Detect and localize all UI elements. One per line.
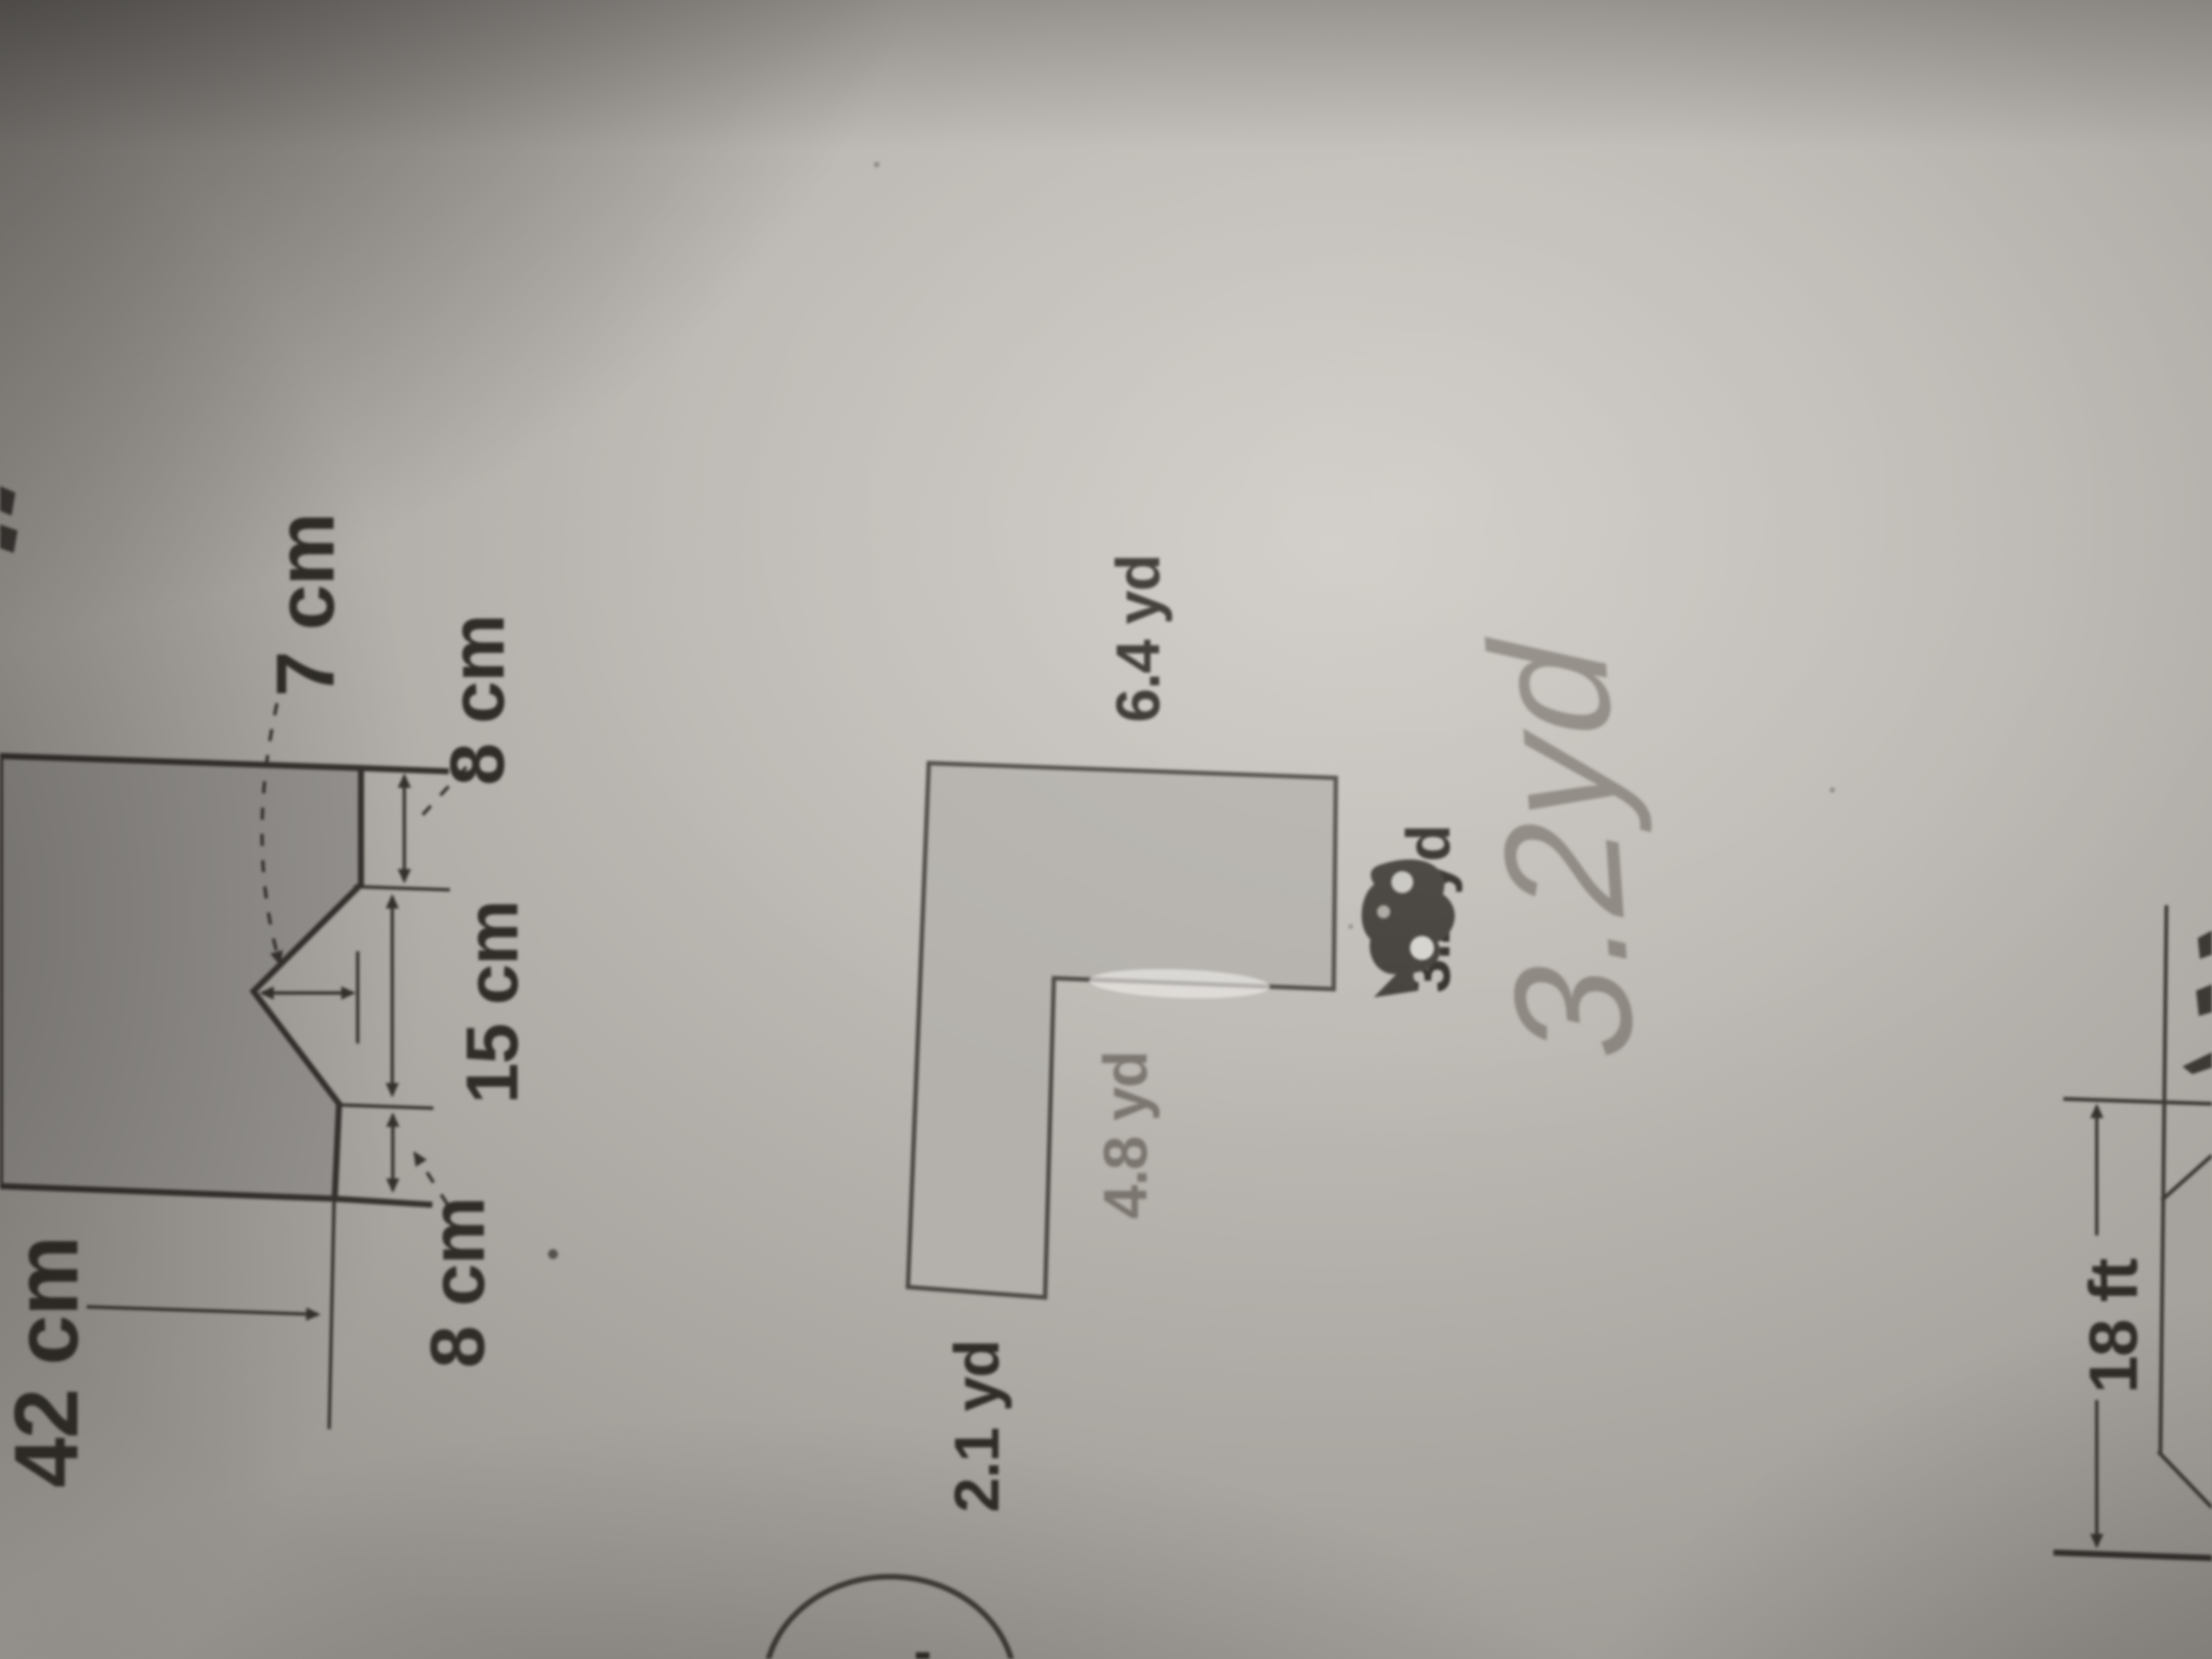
label-7cm: 7 cm bbox=[259, 513, 351, 697]
edge-fragment-right-1 bbox=[2198, 930, 2212, 959]
label-18ft: 18 ft bbox=[2076, 1259, 2152, 1393]
label-3-2yd-handwritten: 3.2yd bbox=[1455, 634, 1670, 1061]
figure-l-shape: 6.4 yd 4.8 yd 2.1 yd 3.2 yd 3.2yd 6. bbox=[765, 555, 1670, 1659]
dust-speck-4 bbox=[1348, 924, 1353, 929]
extension-line-notch-lower bbox=[339, 1105, 433, 1108]
worksheet-figures-layer: 42 cm 7 cm 8 cm 15 cm 8 cm 6.4 yd 4.8 yd… bbox=[0, 0, 2212, 1659]
figure-partial-bottom-right: 18 ft bbox=[2053, 905, 2212, 1558]
scribble-glare-3 bbox=[1377, 905, 1390, 918]
label-2-1yd: 2.1 yd bbox=[942, 1340, 1012, 1513]
notched-rectangle-shape bbox=[0, 756, 361, 1199]
label-15cm: 15 cm bbox=[452, 901, 533, 1104]
dust-speck-2 bbox=[874, 162, 879, 167]
scribble-glare-2 bbox=[1410, 936, 1434, 960]
partial-baseline bbox=[2053, 1553, 2212, 1558]
edge-fragment-right-2 bbox=[2196, 984, 2212, 1016]
dimension-42cm-arrow bbox=[87, 1307, 318, 1314]
leader-8cm-bottom bbox=[415, 1153, 448, 1205]
label-8cm-top: 8 cm bbox=[434, 615, 520, 786]
edge-fragment-right-3 bbox=[2182, 1052, 2212, 1074]
problem-number-circle bbox=[765, 1577, 1015, 1659]
label-6-4yd: 6.4 yd bbox=[1104, 555, 1172, 723]
partial-cross-line bbox=[2063, 1099, 2212, 1104]
partial-shape bbox=[2157, 1154, 2212, 1509]
problem-number-text: 6. bbox=[848, 1647, 949, 1659]
label-42cm: 42 cm bbox=[0, 1237, 97, 1488]
dust-speck-1 bbox=[548, 1249, 558, 1259]
figure-notched-rectangle: 42 cm 7 cm 8 cm 15 cm 8 cm bbox=[0, 513, 533, 1488]
extension-line-notch-upper bbox=[354, 887, 450, 890]
dust-speck-3 bbox=[1830, 787, 1835, 793]
label-4-8yd: 4.8 yd bbox=[1091, 1051, 1160, 1219]
edge-fragment-left-2 bbox=[0, 524, 18, 553]
edge-fragment-left-1 bbox=[0, 486, 15, 516]
worksheet-photo: 42 cm 7 cm 8 cm 15 cm 8 cm 6.4 yd 4.8 yd… bbox=[0, 0, 2212, 1659]
label-8cm-bottom: 8 cm bbox=[414, 1198, 500, 1368]
scribble-glare-1 bbox=[1391, 871, 1413, 893]
extension-line-42cm bbox=[329, 1200, 334, 1429]
